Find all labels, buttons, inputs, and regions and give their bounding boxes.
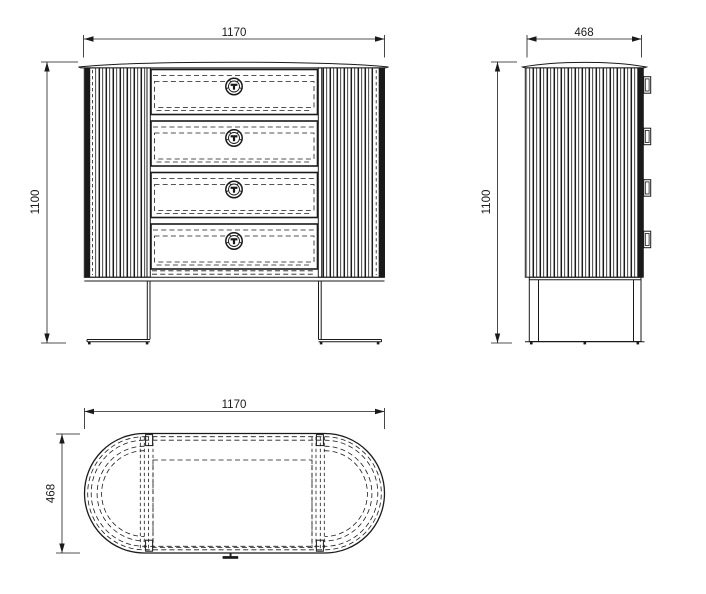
drawer-front — [151, 173, 318, 218]
front-right-fluted-panel — [318, 68, 384, 277]
arrowhead-right — [632, 36, 642, 41]
flute-stripes — [322, 68, 374, 277]
drawing-canvas: 1170 1100 — [0, 0, 706, 594]
arrowhead-top — [44, 62, 49, 72]
knob-bar — [223, 556, 239, 559]
arrowhead-bottom — [44, 334, 49, 344]
arrowhead-left — [527, 36, 537, 41]
leg-glide — [377, 342, 380, 344]
knob-side-icon — [644, 77, 651, 94]
top-depth-label: 468 — [46, 484, 58, 503]
leg-glide — [88, 342, 91, 344]
drawer-knob-icon — [226, 78, 242, 94]
leg-glide — [146, 342, 149, 344]
front-view: 1170 1100 — [30, 27, 389, 344]
hidden-line — [140, 437, 153, 550]
leg-foot — [319, 340, 382, 342]
arrowhead-top — [495, 62, 500, 72]
top-view: 1170 468 — [46, 399, 385, 559]
top-width-label: 1170 — [222, 399, 247, 411]
arrowhead-left — [85, 409, 95, 414]
leg-outline — [529, 277, 641, 341]
front-left-fluted-panel — [84, 68, 150, 277]
front-drawer-stack — [151, 70, 318, 270]
hidden-line — [312, 437, 324, 550]
technical-drawing-page: 1170 1100 — [0, 0, 706, 594]
leg-glide — [637, 342, 640, 344]
arrowhead-right — [375, 36, 385, 41]
drawer-front — [151, 121, 318, 166]
drawer-knob-icon — [226, 181, 242, 197]
side-tabletop — [523, 62, 647, 68]
side-knobs — [644, 77, 651, 248]
knob-side-icon — [644, 180, 651, 197]
leg-upright — [319, 281, 322, 339]
arrowhead-bottom — [59, 544, 64, 554]
hidden-arc — [97, 446, 144, 541]
top-depth-dimension: 468 — [46, 434, 81, 553]
panel-edge-band — [379, 68, 384, 277]
leg-glide — [530, 342, 533, 344]
knob-side-icon — [644, 231, 651, 248]
side-depth-dimension: 468 — [527, 27, 642, 58]
drawer-front — [151, 70, 318, 115]
front-height-dimension: 1100 — [30, 62, 78, 343]
top-hidden-end-arcs — [97, 446, 372, 541]
front-left-leg — [87, 281, 150, 344]
drawer-knob-icon — [226, 130, 242, 146]
front-right-leg — [319, 281, 382, 344]
flute-stripes — [95, 68, 147, 277]
knob-top-icon — [223, 553, 239, 559]
side-height-label: 1100 — [481, 190, 493, 215]
top-hidden-outline — [88, 437, 382, 550]
front-width-label: 1170 — [222, 27, 247, 39]
extension-lines — [491, 62, 517, 343]
arrowhead-bottom — [495, 334, 500, 344]
leg-glide — [584, 342, 587, 344]
side-height-dimension: 1100 — [481, 62, 517, 343]
leg-inner-lines — [529, 280, 641, 342]
front-height-label: 1100 — [30, 190, 42, 215]
top-outline — [85, 434, 385, 554]
panel-edge-band — [85, 68, 90, 277]
knob-side-icon — [644, 128, 651, 145]
top-hidden-outline — [91, 440, 378, 546]
front-tabletop — [79, 62, 389, 68]
arrowhead-right — [375, 409, 385, 414]
leg-foot — [87, 340, 150, 342]
arrowhead-left — [84, 36, 94, 41]
knob-stem — [230, 553, 232, 556]
top-hidden-leg-lines — [140, 437, 324, 550]
leg-upright — [147, 281, 150, 339]
top-width-dimension: 1170 — [85, 399, 385, 429]
front-width-dimension: 1170 — [84, 27, 385, 58]
front-edge-band — [637, 68, 643, 277]
top-leg-sections — [146, 435, 324, 552]
drawer-front — [151, 224, 318, 269]
side-depth-label: 468 — [574, 27, 593, 39]
top-hidden-drawer-box — [153, 460, 312, 548]
side-view: 468 1100 — [481, 27, 651, 344]
extension-lines — [56, 434, 80, 553]
hidden-arc — [325, 446, 372, 541]
extension-lines — [41, 62, 78, 343]
arrowhead-top — [59, 434, 64, 444]
flute-stripes — [527, 68, 638, 277]
side-leg-panel — [525, 277, 645, 344]
side-fluted-body — [525, 68, 643, 277]
leg-glide — [320, 342, 323, 344]
drawer-knob-icon — [226, 233, 242, 249]
